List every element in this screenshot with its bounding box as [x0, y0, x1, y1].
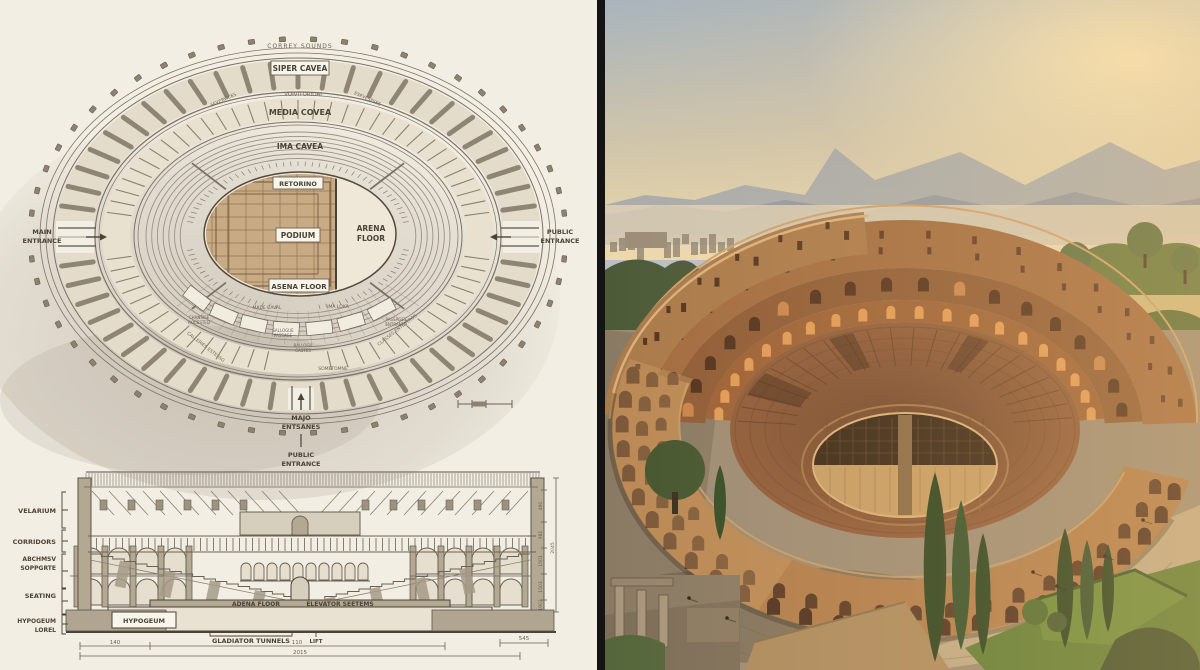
label-room1-2: ROCESTED: [188, 320, 210, 325]
label-hypogeum-box: HYPOGEUM: [123, 617, 165, 625]
dim-right-0: 490: [538, 502, 544, 511]
label-arena-floor-2: FLOOR: [357, 234, 385, 243]
label-podium: PODIUM: [281, 231, 315, 240]
label-south-public-2: ENTRANCE: [282, 460, 321, 468]
label-vomit-bottom: SOMETOMNE: [318, 366, 348, 372]
label-arches-1: ABCHMSV: [22, 556, 56, 563]
label-arena-floor-bottom: ASENA FLOOR: [271, 283, 327, 291]
dim-right-4: 1903: [538, 599, 544, 611]
dim-140: 140: [110, 640, 121, 646]
label-public-entrance-2: ENTRANCE: [541, 237, 580, 245]
label-made-caval: MADE CAVAL: [252, 305, 282, 311]
golden-light-overlay: [605, 0, 1200, 670]
photo-panel: [605, 0, 1200, 670]
label-media-cavea: MEDIA COVEA: [269, 108, 332, 117]
dim-right-1: 981: [538, 531, 544, 540]
label-lift: LIFT: [309, 639, 322, 645]
dim-545: 545: [519, 636, 530, 642]
label-room2-2: PASSAGE: [274, 333, 293, 338]
dim-110: 110: [292, 640, 303, 646]
dim-right-2: 1501: [538, 555, 544, 567]
label-upper-cavea: SIPER CAVEA: [273, 64, 328, 73]
label-vomitoria: VOIVITORIOAI: [284, 92, 322, 98]
label-gladiator-tunnels: GLADIATOR TUNNELS: [212, 637, 290, 645]
label-section-arena-floor: ADENA FLOOR: [232, 601, 280, 608]
label-room3-2: CASTES: [295, 348, 311, 353]
label-south-public-1: PUBLIC: [288, 451, 315, 459]
blueprint-panel: CORREY SOUNDS SIPER CAVEA VOIVITORIOAI M…: [0, 0, 597, 670]
label-retiring: RETORINO: [279, 180, 317, 188]
label-public-entrance-1: PUBLIC: [547, 228, 574, 236]
panel-divider: [597, 0, 605, 670]
label-seating: SEATING: [25, 592, 56, 600]
colosseum-aerial-photo: [605, 0, 1200, 670]
dim-total: 2015: [293, 650, 307, 656]
label-elevators: ELEVATOR SEETEMS: [306, 601, 373, 608]
label-room4-2: ENTRANTE: [385, 322, 407, 327]
label-corridors: CORRIDORS: [13, 538, 57, 546]
label-hypogeum-level-2: LOREL: [35, 627, 56, 634]
dim-right-total: 2045: [550, 542, 556, 554]
label-main-entrance-1: MAIN: [32, 228, 51, 236]
label-hypogeum-level-1: HYPOGEUM: [17, 618, 56, 625]
blueprint-drawing: CORREY SOUNDS SIPER CAVEA VOIVITORIOAI M…: [0, 0, 597, 670]
label-south-entrance-1: MAJO: [291, 414, 311, 422]
label-arena-floor-1: ARENA: [357, 224, 386, 233]
screenshot-root: CORREY SOUNDS SIPER CAVEA VOIVITORIOAI M…: [0, 0, 1200, 670]
label-arches-2: SOPPGRTE: [20, 565, 56, 572]
label-ima-cavea: IMA CAVEA: [277, 142, 323, 151]
label-velarium: VELARIUM: [18, 507, 56, 515]
label-ima-loka: IMA LOKA: [327, 304, 349, 310]
label-south-entrance-2: ENTSANES: [282, 423, 321, 431]
label-ring-top: CORREY SOUNDS: [267, 43, 332, 50]
dim-right-3: 1503: [538, 581, 544, 593]
label-main-entrance-2: ENTRANCE: [23, 237, 62, 245]
